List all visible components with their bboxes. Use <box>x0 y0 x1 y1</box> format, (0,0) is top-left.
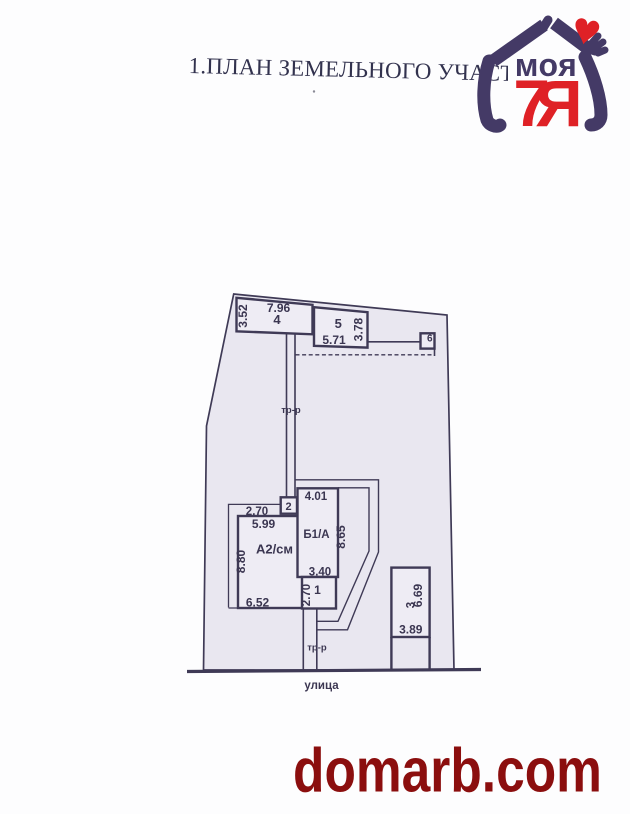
svg-text:6.52: 6.52 <box>246 596 270 610</box>
svg-text:Б1/А: Б1/А <box>303 529 329 541</box>
svg-text:5: 5 <box>335 316 342 331</box>
svg-text:4: 4 <box>273 312 281 327</box>
svg-text:2: 2 <box>285 501 291 513</box>
svg-text:тр-р: тр-р <box>281 405 301 416</box>
svg-text:улица: улица <box>304 680 339 692</box>
svg-text:А2/см: А2/см <box>256 542 293 557</box>
svg-text:8.80: 8.80 <box>234 549 248 573</box>
svg-text:3.78: 3.78 <box>352 317 366 341</box>
svg-text:2.70: 2.70 <box>301 584 313 606</box>
svg-text:3.89: 3.89 <box>399 623 423 637</box>
svg-text:4.01: 4.01 <box>305 491 328 503</box>
svg-text:5.99: 5.99 <box>252 517 276 531</box>
svg-text:1: 1 <box>314 583 321 597</box>
svg-text:3.52: 3.52 <box>236 304 250 328</box>
svg-text:3.40: 3.40 <box>309 567 331 579</box>
svg-text:тр-р: тр-р <box>307 643 327 654</box>
svg-text:8.65: 8.65 <box>334 525 348 549</box>
svg-text:6: 6 <box>427 334 433 345</box>
svg-text:5.71: 5.71 <box>322 333 346 347</box>
svg-text:6.69: 6.69 <box>411 583 425 607</box>
